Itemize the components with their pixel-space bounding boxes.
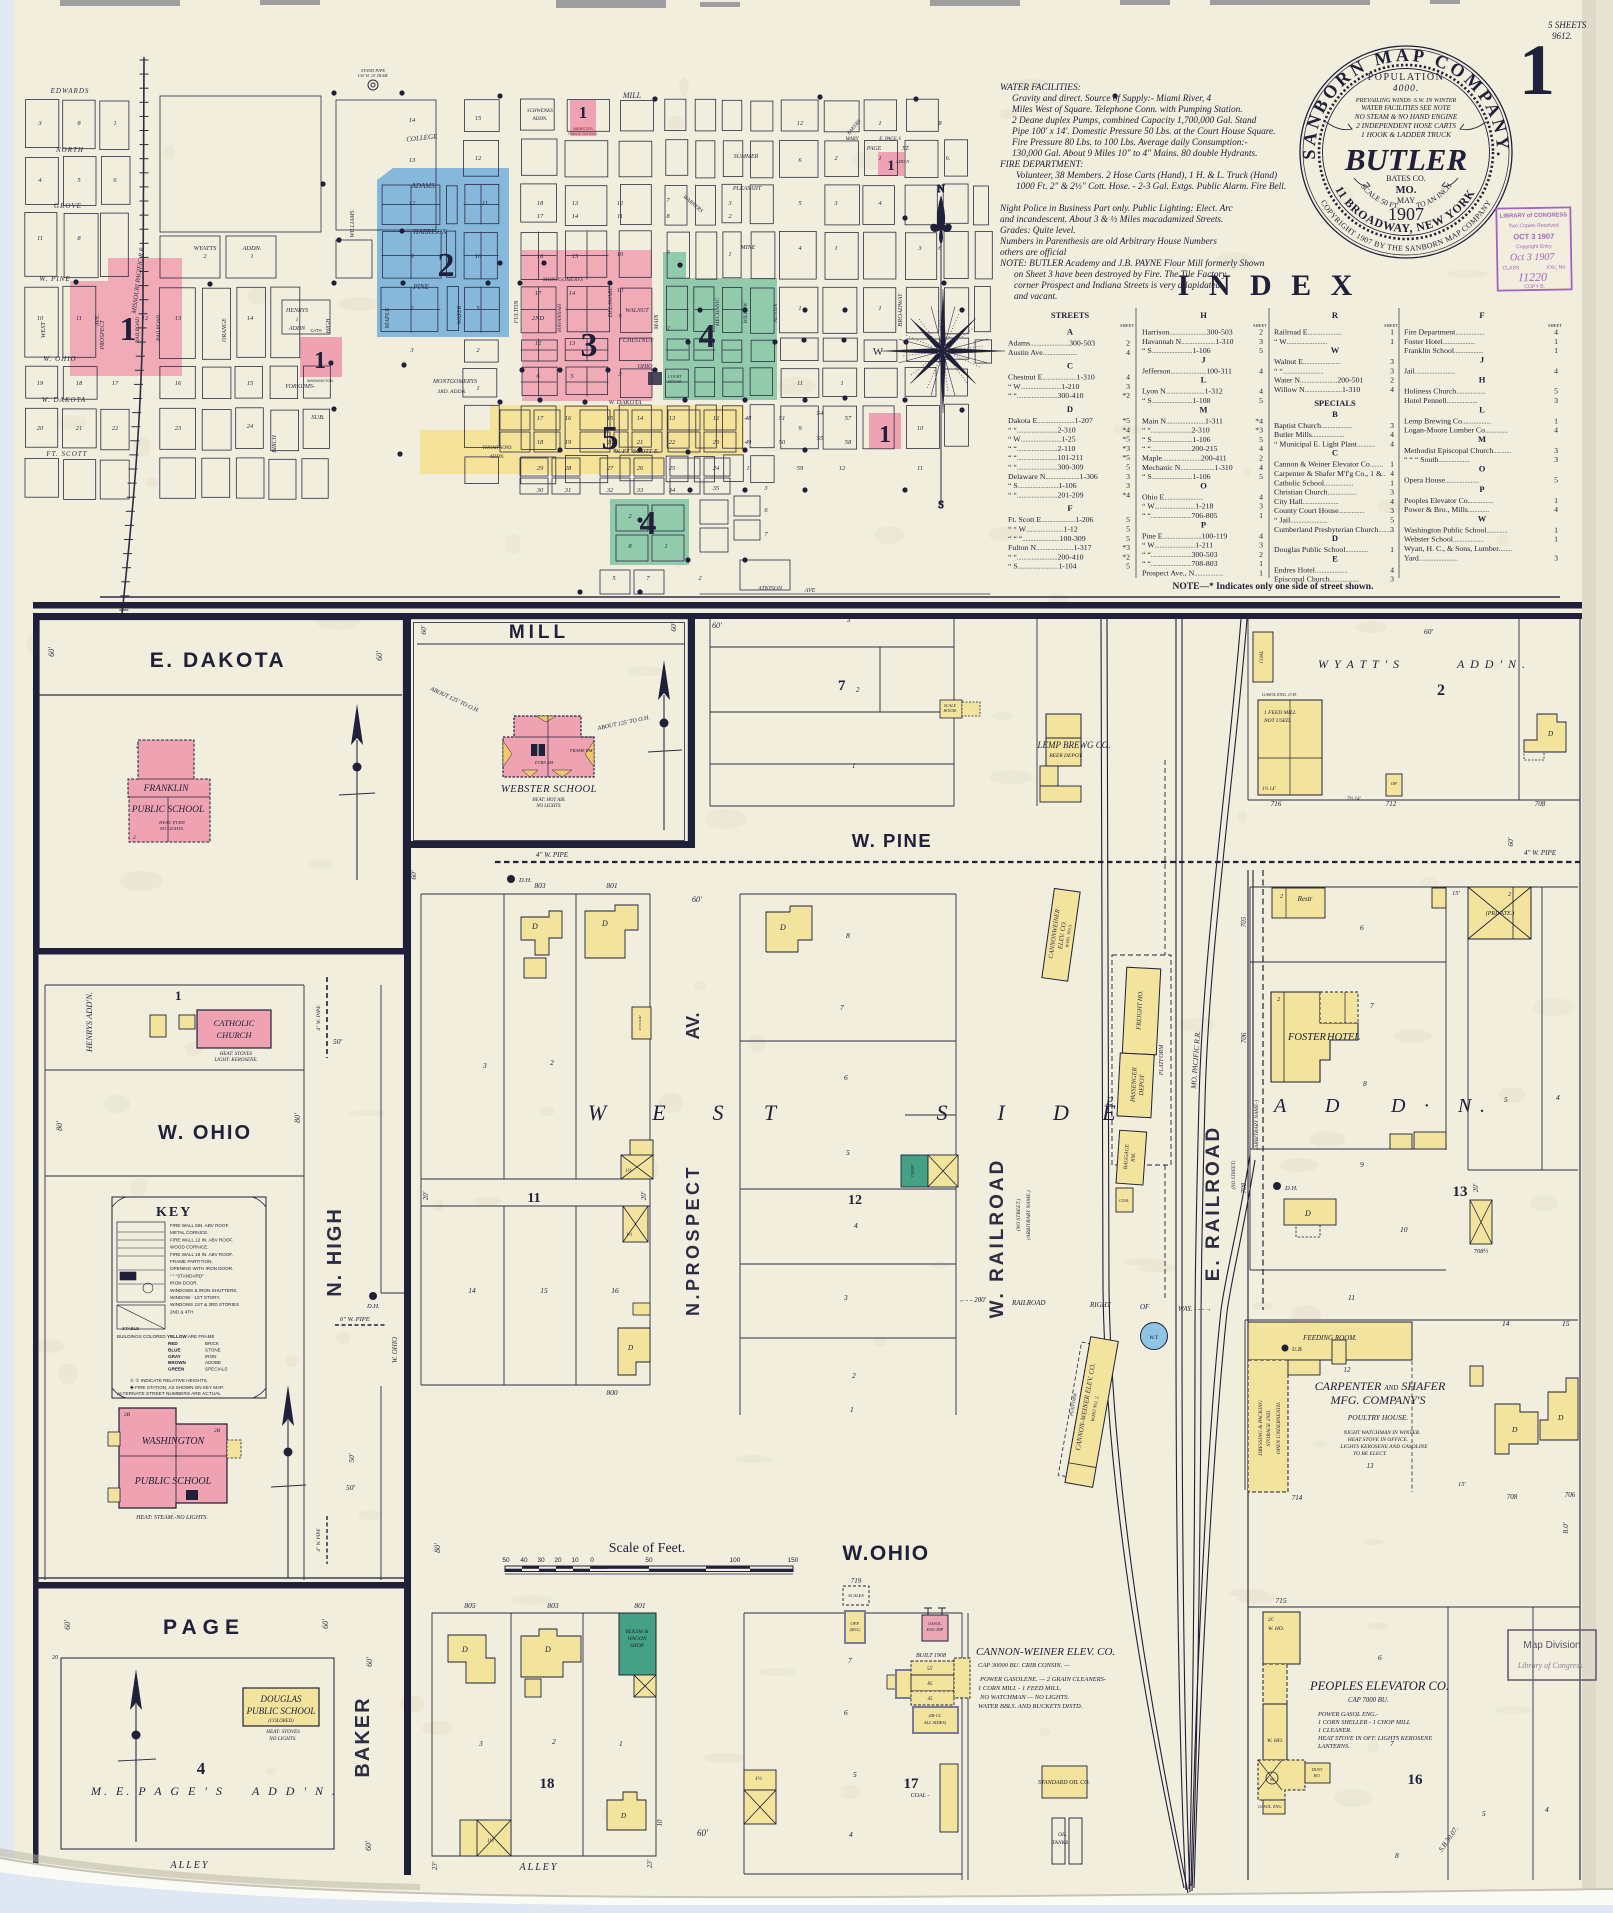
svg-text:PROSPECT: PROSPECT (100, 320, 106, 351)
svg-text:HEAT: STEAM.-NO LIGHTS.: HEAT: STEAM.-NO LIGHTS. (135, 1515, 208, 1521)
svg-text:22: 22 (112, 425, 119, 432)
svg-text:ST POLIM: ST POLIM (638, 1014, 642, 1030)
svg-text:Mechanic N....................: Mechanic N.....................1-310 (1142, 463, 1233, 472)
svg-text:D.H.: D.H. (1284, 1185, 1298, 1192)
svg-text:Oct 3 1907: Oct 3 1907 (1510, 252, 1556, 264)
svg-text:2B: 2B (124, 1412, 131, 1418)
svg-text:D.H.: D.H. (518, 877, 532, 884)
svg-text:Austin Ave....................: Austin Ave..................... (1008, 348, 1077, 357)
svg-text:712: 712 (1386, 800, 1397, 808)
svg-text:1: 1 (1390, 337, 1394, 346)
svg-text:E: E (1105, 1094, 1114, 1108)
svg-text:*4: *4 (1255, 416, 1263, 425)
svg-text:60': 60' (697, 1828, 709, 1838)
svg-text:17: 17 (904, 1776, 920, 1792)
svg-text:NOTE: BUTLER Academy and J.B.: NOTE: BUTLER Academy and J.B. PAYNE Flou… (999, 258, 1265, 269)
svg-text:Webster School................: Webster School................... (1404, 535, 1484, 544)
svg-text:14: 14 (637, 415, 644, 422)
svg-text:20': 20' (640, 1191, 648, 1200)
svg-text:HEAT: STOVES: HEAT: STOVES (265, 1729, 300, 1735)
svg-text:WATER BBLS. AND BUCKETS DISTD: WATER BBLS. AND BUCKETS DISTD. (978, 1703, 1083, 1710)
svg-text:16: 16 (175, 380, 182, 387)
svg-text:11: 11 (797, 380, 803, 387)
svg-text:13: 13 (569, 340, 576, 347)
svg-text:Catholic School...............: Catholic School.................. (1274, 478, 1354, 487)
svg-text:Volunteer, 38 Members. 2 Hose: Volunteer, 38 Members. 2 Hose Carts (Han… (1016, 170, 1277, 181)
svg-text:OFF.: OFF. (850, 1621, 859, 1626)
svg-text:34: 34 (668, 487, 676, 494)
svg-text:12: 12 (713, 415, 720, 422)
svg-text:Ft. Scott E...................: Ft. Scott E.....................1-206 (1008, 515, 1094, 524)
svg-text:24: 24 (713, 465, 720, 472)
svg-text:5: 5 (1554, 387, 1558, 396)
svg-text:4: 4 (1556, 1093, 1560, 1102)
svg-text:50: 50 (502, 1557, 510, 1564)
svg-text:YORKUMS-: YORKUMS- (285, 384, 315, 390)
svg-text:(COLORED): (COLORED) (268, 1719, 294, 1724)
svg-text:W. HO.: W. HO. (1268, 1626, 1284, 1632)
svg-text:10: 10 (656, 1819, 664, 1827)
svg-text:WINDOW - 1ST STORY.: WINDOW - 1ST STORY. (170, 1295, 220, 1300)
svg-text:D: D (620, 1812, 626, 1820)
svg-text:WEBSTER SCHOOL: WEBSTER SCHOOL (501, 784, 597, 795)
svg-text:12: 12 (409, 200, 416, 207)
svg-text:Main N........................: Main N........................1-311 (1142, 416, 1223, 425)
svg-text:12: 12 (475, 155, 482, 162)
svg-text:0: 0 (590, 1557, 594, 1564)
svg-text:60': 60' (365, 1657, 374, 1667)
svg-text:CANNON-WEINER ELEV. CO.: CANNON-WEINER ELEV. CO. (976, 1646, 1115, 1658)
svg-text:“ W.........................1: “ W.........................1-211 (1142, 541, 1213, 550)
svg-text:10: 10 (617, 287, 624, 294)
svg-text:1: 1 (1390, 460, 1394, 469)
svg-text:A D D ' N .: A D D ' N . (1456, 657, 1527, 671)
svg-text:“ “.........................7: “ “.........................708-803 (1142, 559, 1218, 568)
svg-text:18: 18 (540, 1776, 555, 1792)
svg-text:STABLE: STABLE (122, 1326, 139, 1331)
svg-text:1: 1 (798, 305, 801, 312)
svg-text:EDWARDS: EDWARDS (50, 87, 90, 95)
svg-text:12: 12 (535, 340, 542, 347)
svg-text:12: 12 (797, 120, 804, 127)
svg-text:1: 1 (664, 543, 667, 550)
svg-text:Jail.........................: Jail......................... (1404, 366, 1456, 375)
svg-text:PINE: PINE (412, 283, 429, 291)
svg-text:L: L (1201, 375, 1207, 385)
svg-text:5: 5 (1504, 1095, 1508, 1104)
svg-text:GASOL. ENG.: GASOL. ENG. (1258, 1804, 1283, 1809)
svg-text:30: 30 (536, 487, 544, 494)
svg-text:60': 60' (364, 1841, 373, 1851)
svg-text:A D D ' N .: A D D ' N . (251, 1784, 338, 1798)
svg-text:County Court House............: County Court House................ (1274, 506, 1365, 515)
svg-text:4" W. PIPE: 4" W. PIPE (1524, 849, 1557, 857)
svg-text:16: 16 (1408, 1772, 1424, 1788)
svg-text:4: 4 (1259, 444, 1263, 453)
svg-text:2: 2 (550, 1058, 554, 1067)
svg-text:BROWN: BROWN (168, 1360, 187, 1365)
svg-text:51: 51 (779, 415, 786, 422)
svg-text:1: 1 (1554, 416, 1558, 425)
svg-text:2: 2 (438, 247, 455, 284)
svg-text:Two Copies Received: Two Copies Received (1508, 223, 1558, 230)
svg-text:NOTE—* Indicates only one side: NOTE—* Indicates only one side of street… (1173, 582, 1374, 592)
svg-text:22: 22 (669, 439, 676, 446)
svg-text:and incandescent. About 3 & ½: and incandescent. About 3 & ½ Miles maca… (1000, 214, 1223, 225)
svg-text:FOSTER: FOSTER (1287, 1032, 1327, 1043)
svg-text:P: P (1201, 519, 1206, 529)
svg-text:FRANKLIN: FRANKLIN (143, 784, 190, 794)
svg-text:4: 4 (1390, 565, 1394, 574)
svg-text:Pine E........................: Pine E........................100-119 (1142, 531, 1227, 540)
svg-text:12: 12 (617, 200, 624, 207)
svg-text:Logan-Moore Lumber Co.........: Logan-Moore Lumber Co.............. (1404, 426, 1508, 435)
svg-text:Copyright Entry: Copyright Entry (1516, 244, 1552, 251)
svg-text:Hotel Pennell.................: Hotel Pennell................... (1404, 396, 1478, 405)
svg-text:1½ 14': 1½ 14' (1262, 787, 1277, 792)
svg-text:60': 60' (321, 1619, 330, 1629)
svg-text:3: 3 (1126, 481, 1130, 490)
svg-text:RED: RED (168, 1341, 178, 1346)
svg-text:BIRCH: BIRCH (272, 435, 278, 453)
svg-text:DUST: DUST (1311, 1767, 1323, 1772)
svg-text:1: 1 (1259, 559, 1263, 568)
svg-text:50': 50' (333, 1037, 343, 1046)
svg-text:14: 14 (247, 315, 254, 322)
svg-text:Yard........................: Yard........................ (1404, 553, 1458, 562)
svg-text:3: 3 (1390, 421, 1394, 430)
svg-text:CATH: CATH (310, 328, 321, 333)
svg-text:800: 800 (606, 1388, 618, 1397)
svg-text:2: 2 (204, 254, 207, 260)
svg-text:“ “.........................2: “ “.........................2-310 (1142, 426, 1210, 435)
svg-text:2C: 2C (1268, 1618, 1275, 1623)
svg-text:N. HIGH: N. HIGH (324, 1207, 346, 1297)
svg-text:20: 20 (52, 1655, 58, 1661)
svg-text:Pipe 100' x 14'. Domestic Pres: Pipe 100' x 14'. Domestic Pressure 50 Lb… (1011, 127, 1276, 137)
svg-text:Carpenter & Shafer M'f'g Co.,: Carpenter & Shafer M'f'g Co., 1 &.. (1274, 469, 1386, 478)
svg-text:8: 8 (1363, 1079, 1367, 1088)
svg-text:LIGHTS KEROSENE AND GASOLINE: LIGHTS KEROSENE AND GASOLINE (1339, 1444, 1428, 1450)
svg-text:“ “.........................3: “ “.........................300-309 (1008, 463, 1084, 472)
svg-text:15: 15 (607, 415, 614, 422)
svg-text:12: 12 (848, 1193, 862, 1208)
svg-text:6: 6 (844, 1073, 848, 1082)
svg-text:*4: *4 (1122, 425, 1130, 434)
svg-text:D: D (531, 922, 538, 931)
svg-text:BATES CO.: BATES CO. (1386, 174, 1426, 183)
svg-text:2: 2 (1280, 894, 1283, 900)
svg-text:WINDOWS 1ST & 3RD STORIES: WINDOWS 1ST & 3RD STORIES (170, 1302, 239, 1307)
svg-text:MARY: MARY (845, 137, 860, 142)
svg-text:1 FEED MILL: 1 FEED MILL (1264, 710, 1296, 716)
svg-text:Walnut E......................: Walnut E....................... (1274, 357, 1341, 366)
svg-text:26: 26 (637, 465, 644, 472)
svg-text:1: 1 (850, 1405, 854, 1414)
svg-text:60': 60' (47, 647, 56, 657)
svg-text:U.B: U.B (1292, 1347, 1302, 1353)
svg-text:Douglas Public School.........: Douglas Public School.............. (1274, 545, 1369, 554)
svg-text:City Hall.....................: City Hall...................... (1274, 497, 1339, 506)
svg-text:3: 3 (1390, 366, 1394, 375)
svg-text:SCALES: SCALES (848, 1593, 864, 1598)
svg-text:1 CORN MILL - 1 FEED MILL.: 1 CORN MILL - 1 FEED MILL. (978, 1685, 1062, 1692)
svg-text:5 SHEETS: 5 SHEETS (1548, 20, 1587, 30)
svg-text:OF: OF (1140, 1303, 1150, 1311)
svg-text:6: 6 (1360, 923, 1364, 932)
svg-text:D: D (1557, 1413, 1564, 1422)
svg-text:18: 18 (76, 380, 83, 387)
svg-text:19: 19 (565, 439, 572, 446)
svg-text:“ “.........................2: “ “.........................2-110 (1008, 444, 1076, 453)
svg-text:4: 4 (1390, 439, 1394, 448)
svg-text:1½: 1½ (625, 1169, 632, 1174)
svg-text:HAVANNAH: HAVANNAH (557, 303, 563, 333)
svg-text:OPENING WITH IRON DOOR.: OPENING WITH IRON DOOR. (170, 1266, 233, 1271)
svg-text:SUB.: SUB. (311, 414, 325, 421)
svg-text:COAL: COAL (1119, 1199, 1129, 1203)
svg-text:705: 705 (1240, 916, 1248, 927)
svg-text:4: 4 (197, 1759, 206, 1778)
svg-text:4" W. PIPE: 4" W. PIPE (315, 1005, 322, 1031)
svg-text:11220: 11220 (1518, 270, 1547, 285)
svg-text:708½: 708½ (1474, 1248, 1489, 1255)
svg-text:15: 15 (540, 1286, 548, 1295)
svg-text:3: 3 (1390, 506, 1394, 515)
svg-text:C: C (1332, 448, 1338, 458)
svg-text:15: 15 (247, 380, 254, 387)
svg-text:BUILDINGS COLORED YELLOW ARE F: BUILDINGS COLORED YELLOW ARE FRAME (117, 1334, 215, 1339)
svg-text:2: 2 (1259, 454, 1263, 463)
svg-text:*2: *2 (1122, 391, 1130, 400)
svg-text:Lyon N........................: Lyon N........................1-312 (1142, 387, 1223, 396)
svg-text:HOUSE: HOUSE (667, 379, 682, 384)
svg-text:DOUGLAS: DOUGLAS (259, 1694, 302, 1704)
svg-text:80': 80' (55, 1121, 64, 1131)
svg-text:*2: *2 (1122, 552, 1130, 561)
svg-text:2: 2 (1390, 376, 1394, 385)
svg-text:M: M (1478, 434, 1486, 444)
svg-text:W.T.: W.T. (1149, 1335, 1158, 1341)
svg-text:Foster Hotel..................: Foster Hotel.................... (1404, 337, 1476, 346)
svg-text:“ W.........................: “ W......................... (1274, 337, 1328, 346)
svg-text:Wyatt, H. C., & Sons, Lumber..: Wyatt, H. C., & Sons, Lumber........ (1404, 544, 1512, 553)
svg-text:·: · (1424, 1095, 1429, 1117)
svg-text:19: 19 (37, 380, 44, 387)
svg-text:23': 23' (431, 1861, 439, 1870)
svg-text:HOUSE: HOUSE (942, 708, 957, 713)
svg-text:5: 5 (1482, 1809, 1486, 1818)
svg-text:W Y A T T ' S: W Y A T T ' S (1318, 657, 1401, 671)
svg-text:Christian Church..............: Christian Church.................. (1274, 488, 1357, 497)
svg-text:50': 50' (347, 1453, 356, 1463)
svg-text:7: 7 (838, 678, 846, 694)
svg-text:GASOL.: GASOL. (928, 1621, 941, 1626)
svg-text:3: 3 (1554, 396, 1558, 405)
svg-text:and vacant.: and vacant. (1014, 292, 1057, 302)
svg-text:2: 2 (1259, 550, 1263, 559)
svg-text:3: 3 (1390, 525, 1394, 534)
svg-text:2: 2 (1126, 339, 1130, 348)
svg-text:ADOBE: ADOBE (205, 1360, 221, 1365)
svg-text:16: 16 (565, 415, 572, 422)
svg-text:B: B (1332, 409, 1338, 419)
svg-text:100: 100 (730, 1557, 741, 1564)
svg-text:D: D (1390, 1095, 1406, 1117)
svg-text:Havannah N....................: Havannah N.....................1-310 (1142, 337, 1234, 346)
svg-text:60': 60' (669, 622, 678, 632)
svg-text:R: R (1332, 310, 1339, 320)
svg-text:2: 2 (852, 1371, 856, 1380)
svg-text:FULTON: FULTON (514, 300, 520, 325)
svg-text:5: 5 (846, 1148, 850, 1157)
svg-text:50: 50 (779, 439, 786, 446)
svg-text:3: 3 (1126, 382, 1130, 391)
svg-text:*5: *5 (1122, 453, 1130, 462)
svg-text:WATER FACILITIES SEE NOTE: WATER FACILITIES SEE NOTE (1361, 105, 1451, 112)
svg-text:GASOL ENG. O.H.: GASOL ENG. O.H. (1262, 692, 1297, 697)
svg-text:14: 14 (572, 213, 579, 220)
svg-text:1: 1 (887, 158, 895, 174)
svg-text:14: 14 (1502, 1319, 1510, 1328)
svg-text:(PRIVATE.): (PRIVATE.) (1486, 910, 1515, 917)
svg-text:10: 10 (571, 1557, 579, 1564)
svg-text:POPULATION: POPULATION (1368, 72, 1445, 83)
svg-text:1: 1 (1259, 511, 1263, 520)
svg-text:1½: 1½ (626, 1233, 633, 1238)
svg-text:11: 11 (1348, 1293, 1355, 1302)
svg-text:ADD N.: ADD N. (895, 159, 911, 164)
svg-text:COAL -: COAL - (911, 1793, 930, 1799)
svg-text:14: 14 (409, 117, 416, 124)
svg-text:32: 32 (606, 487, 614, 494)
svg-text:15: 15 (475, 115, 482, 122)
svg-text:PAGE: PAGE (866, 146, 882, 152)
svg-text:2: 2 (1437, 682, 1445, 699)
svg-text:55: 55 (817, 435, 824, 442)
svg-text:715: 715 (1275, 1596, 1287, 1605)
svg-text:WATER: WATER (457, 305, 463, 324)
svg-text:W. FT. SCOTT E.: W. FT. SCOTT E. (614, 448, 659, 455)
svg-text:S: S (938, 500, 944, 511)
svg-text:MILL: MILL (509, 622, 569, 643)
svg-text:ALL SIDES): ALL SIDES) (923, 1720, 947, 1725)
svg-text:MILL: MILL (622, 91, 642, 100)
svg-text:10: 10 (617, 251, 624, 258)
svg-text:20: 20 (607, 439, 614, 446)
svg-text:4" W. PIPE: 4" W. PIPE (317, 1529, 322, 1552)
svg-text:15': 15' (1458, 1481, 1467, 1488)
svg-text:1: 1 (476, 385, 479, 392)
svg-text:STREETS: STREETS (1051, 310, 1090, 320)
svg-text:1: 1 (1519, 30, 1555, 110)
svg-text:4: 4 (1259, 531, 1263, 540)
svg-text:CAP 7000 BU.: CAP 7000 BU. (1348, 1697, 1389, 1704)
svg-text:MINE: MINE (740, 245, 756, 251)
svg-text:CHOP.: CHOP. (910, 1165, 915, 1178)
svg-text:2 Deane duplex Pumps, combined: 2 Deane duplex Pumps, combined Capacity … (1012, 116, 1257, 126)
svg-text:*4: *4 (1122, 490, 1130, 499)
svg-text:49: 49 (745, 439, 752, 446)
svg-text:5: 5 (1126, 463, 1130, 472)
svg-text:“ W.........................1: “ W.........................1-210 (1008, 382, 1080, 391)
svg-text:W. OHIO: W. OHIO (391, 1337, 399, 1363)
svg-text:5: 5 (853, 1770, 857, 1779)
svg-text:E. RAILROAD: E. RAILROAD (1203, 1125, 1224, 1282)
svg-text:Harrison......................: Harrison.......................300-503 (1142, 328, 1233, 337)
svg-text:T: T (764, 1100, 778, 1125)
svg-text:Night Police in Business Part: Night Police in Business Part only. Publ… (999, 204, 1234, 214)
svg-text:4: 4 (1390, 497, 1394, 506)
svg-text:NO LIGHTS.: NO LIGHTS. (159, 826, 184, 831)
svg-text:D: D (1052, 1100, 1069, 1125)
svg-text:RIGHT: RIGHT (1089, 1301, 1112, 1309)
svg-text:FIRE WALL 18 IN. ABV ROOF.: FIRE WALL 18 IN. ABV ROOF. (170, 1252, 233, 1257)
svg-text:W. HO.: W. HO. (1267, 1738, 1283, 1744)
svg-text:10: 10 (1400, 1225, 1408, 1234)
svg-text:HENRYS: HENRYS (285, 308, 308, 314)
svg-text:W. DAKOTA: W. DAKOTA (42, 396, 86, 404)
svg-text:“ “.........................2: “ “.........................201-209 (1008, 490, 1084, 499)
svg-text:1000 Ft. 2" & 2½" Cott. Hose.: 1000 Ft. 2" & 2½" Cott. Hose. - 2-3 Gal.… (1016, 181, 1286, 192)
svg-text:25: 25 (669, 465, 676, 472)
svg-text:1: 1 (1554, 496, 1558, 505)
svg-text:D: D (1067, 404, 1073, 414)
svg-text:“ “.........................2: “ “.........................200-215 (1142, 444, 1218, 453)
svg-text:14: 14 (468, 1286, 476, 1295)
svg-text:706: 706 (1565, 1491, 1576, 1499)
svg-text:COAL: COAL (1260, 650, 1265, 663)
svg-text:Washington Public School......: Washington Public School............. (1404, 525, 1508, 534)
svg-text:HEAT STOVE IN OFF. LIGHTS KERO: HEAT STOVE IN OFF. LIGHTS KEROSENE (1317, 1735, 1432, 1742)
svg-text:1: 1 (1390, 545, 1394, 554)
svg-text:708: 708 (1507, 1493, 1518, 1501)
svg-text:Fulton N......................: Fulton N.......................1-317 (1008, 543, 1092, 552)
svg-text:W. OHIO: W. OHIO (43, 355, 76, 363)
svg-text:POWER GASOL ENG.-: POWER GASOL ENG.- (1317, 1711, 1378, 1718)
svg-text:AVE: AVE (804, 588, 816, 594)
svg-text:MAPLE: MAPLE (384, 308, 391, 330)
svg-text:60': 60' (409, 870, 418, 880)
svg-text:Peoples Elevator Co...........: Peoples Elevator Co................ (1404, 496, 1494, 505)
svg-text:11: 11 (617, 213, 623, 220)
svg-text:“ W.........................1: “ W.........................1-218 (1142, 502, 1214, 511)
svg-text:4: 4 (1390, 385, 1394, 394)
svg-text:4" W. PIPE: 4" W. PIPE (536, 851, 569, 859)
svg-text:WILLIAMS: WILLIAMS (350, 210, 356, 237)
svg-text:BUTLER: BUTLER (1344, 142, 1467, 177)
svg-text:3: 3 (482, 1061, 487, 1070)
svg-text:30: 30 (537, 1557, 545, 1564)
svg-text:←- - 200': ←- - 200' (959, 1296, 987, 1304)
svg-text:✚ FIRE STATION, AS SHOWN ON K: ✚ FIRE STATION, AS SHOWN ON KEY MAP. (130, 1385, 224, 1390)
svg-text:13: 13 (409, 157, 416, 164)
svg-text:21: 21 (637, 439, 644, 446)
svg-text:4: 4 (1554, 328, 1558, 337)
svg-text:9: 9 (1360, 1160, 1364, 1169)
svg-text:80': 80' (293, 1113, 302, 1123)
svg-text:716: 716 (1271, 800, 1282, 808)
svg-text:CARPENTER AND SHAFER: CARPENTER AND SHAFER (1315, 1379, 1446, 1393)
svg-text:IRON: IRON (205, 1354, 216, 1359)
svg-text:3: 3 (843, 1293, 848, 1302)
svg-text:HEAT STOVE IN OFFICE.: HEAT STOVE IN OFFICE. (1347, 1437, 1408, 1443)
svg-text:ADDN.: ADDN. (532, 117, 548, 122)
svg-text:29: 29 (537, 465, 544, 472)
svg-text:W: W (1331, 345, 1340, 355)
svg-text:4: 4 (1545, 1805, 1549, 1814)
svg-text:(NO STREET): (NO STREET) (1232, 1160, 1237, 1189)
